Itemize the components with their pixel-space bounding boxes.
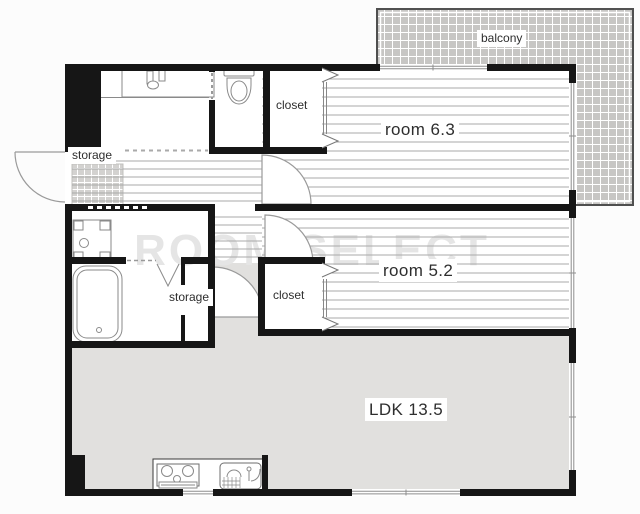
ldk-label: LDK 13.5: [365, 398, 447, 421]
bedroom-mid-side-window: [569, 218, 576, 328]
entry-storage-label: storage: [68, 147, 116, 164]
balcony-window-top: [380, 64, 487, 71]
kitchen-counter: [153, 459, 264, 490]
bedroom-top-side-window: [569, 83, 576, 190]
bedroom-mid-label: room 5.2: [379, 259, 457, 282]
stove-icon: [157, 464, 199, 488]
balcony-label: balcony: [477, 30, 526, 47]
closet-top-label: closet: [272, 97, 311, 114]
ldk-side-window: [569, 363, 576, 470]
floor-plan-drawing: ROOM SELECT: [0, 0, 640, 514]
ldk-bottom-window: [352, 489, 460, 496]
washing-machine-pan-icon: [73, 220, 111, 262]
bedroom-top-label: room 6.3: [381, 118, 459, 141]
bathtub-icon: [73, 266, 122, 342]
closet-mid-label: closet: [269, 287, 308, 304]
kitchen-sink-icon: [220, 463, 261, 489]
floor-plan: ROOM SELECT: [0, 0, 640, 514]
inner-storage-label: storage: [165, 289, 213, 306]
kitchen-bottom-window: [183, 489, 213, 496]
